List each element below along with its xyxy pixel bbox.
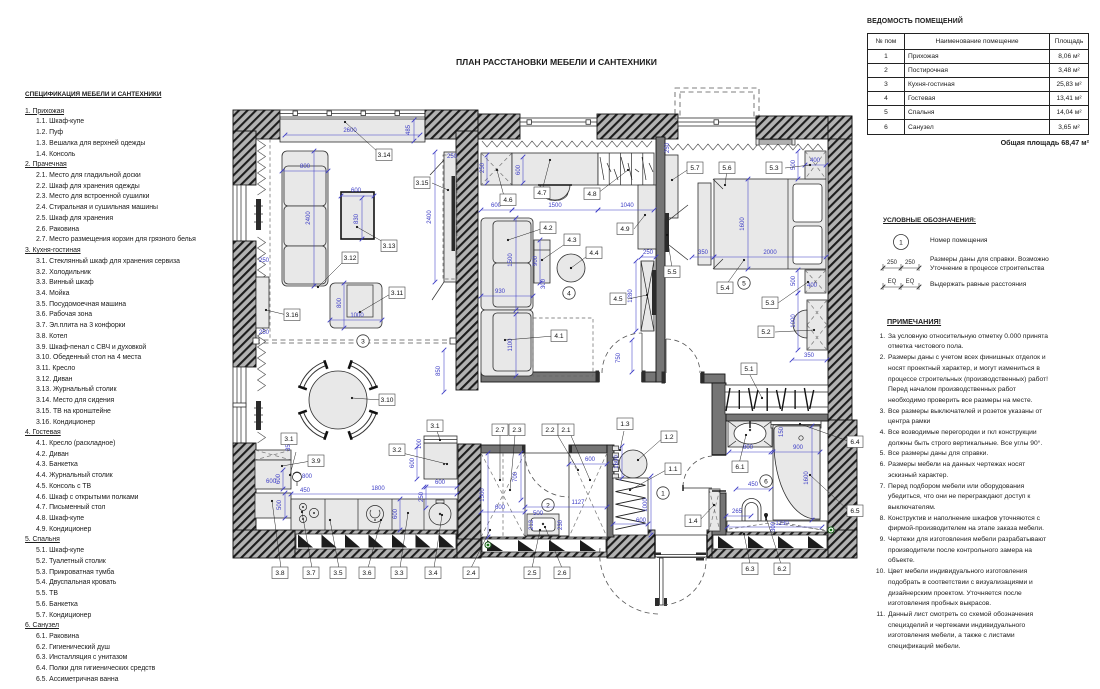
svg-text:1.1: 1.1 <box>668 466 677 473</box>
svg-text:2.2: 2.2 <box>545 427 554 434</box>
svg-text:3.14: 3.14 <box>378 152 391 159</box>
svg-text:600: 600 <box>495 505 506 511</box>
svg-text:5.7: 5.7 <box>690 165 699 172</box>
svg-text:3.8: 3.8 <box>275 570 284 577</box>
svg-text:2000: 2000 <box>763 250 777 256</box>
svg-text:300: 300 <box>541 278 547 289</box>
svg-text:600: 600 <box>276 473 282 484</box>
svg-text:3.11: 3.11 <box>391 290 404 297</box>
svg-text:6.5: 6.5 <box>850 508 859 515</box>
svg-text:4.1: 4.1 <box>554 333 563 340</box>
svg-text:6.1: 6.1 <box>735 464 744 471</box>
svg-text:2.1: 2.1 <box>561 427 570 434</box>
svg-text:1500: 1500 <box>480 488 486 502</box>
svg-text:800: 800 <box>743 445 754 451</box>
svg-text:1.3: 1.3 <box>620 421 629 428</box>
svg-text:4.7: 4.7 <box>537 190 546 197</box>
svg-text:1800: 1800 <box>371 486 385 492</box>
svg-text:4.9: 4.9 <box>620 226 629 233</box>
svg-text:600: 600 <box>410 457 416 468</box>
svg-text:485: 485 <box>406 124 412 135</box>
svg-text:EQ: EQ <box>888 279 897 285</box>
svg-text:930: 930 <box>495 289 506 295</box>
svg-text:3.4: 3.4 <box>428 570 437 577</box>
svg-text:1.2: 1.2 <box>664 434 673 441</box>
svg-text:6: 6 <box>764 479 768 486</box>
svg-text:800: 800 <box>300 164 311 170</box>
svg-text:5.2: 5.2 <box>761 329 770 336</box>
svg-text:3.15: 3.15 <box>416 180 429 187</box>
svg-text:4.6: 4.6 <box>503 197 512 204</box>
svg-text:4.2: 4.2 <box>543 225 552 232</box>
svg-text:800: 800 <box>302 474 313 480</box>
svg-text:1.4: 1.4 <box>688 518 697 525</box>
svg-text:830: 830 <box>354 213 360 224</box>
svg-text:600: 600 <box>393 508 399 519</box>
svg-text:4.8: 4.8 <box>587 191 596 198</box>
svg-text:3.1: 3.1 <box>430 423 439 430</box>
svg-text:1230: 1230 <box>775 521 789 527</box>
svg-text:3.9: 3.9 <box>311 458 320 465</box>
svg-text:900: 900 <box>533 255 539 266</box>
svg-text:250: 250 <box>447 154 458 160</box>
svg-text:1500: 1500 <box>508 253 514 267</box>
svg-text:400: 400 <box>807 283 818 289</box>
svg-text:500: 500 <box>277 499 283 510</box>
svg-text:250: 250 <box>887 260 898 266</box>
svg-text:4.4: 4.4 <box>589 250 598 257</box>
svg-text:6.3: 6.3 <box>745 566 754 573</box>
svg-text:100: 100 <box>417 438 423 449</box>
svg-text:EQ: EQ <box>906 279 915 285</box>
svg-text:3.7: 3.7 <box>306 570 315 577</box>
svg-text:4.5: 4.5 <box>613 296 622 303</box>
svg-text:1: 1 <box>661 491 665 498</box>
svg-text:500: 500 <box>533 511 544 517</box>
svg-text:750: 750 <box>616 352 622 363</box>
svg-text:1000: 1000 <box>791 314 797 328</box>
svg-text:2.7: 2.7 <box>495 427 504 434</box>
svg-text:3.10: 3.10 <box>381 397 394 404</box>
svg-text:700: 700 <box>513 471 519 482</box>
svg-text:3.6: 3.6 <box>362 570 371 577</box>
svg-text:265: 265 <box>732 509 743 515</box>
svg-text:250: 250 <box>643 250 654 256</box>
svg-text:1127: 1127 <box>572 500 586 506</box>
svg-text:213: 213 <box>529 519 535 530</box>
svg-text:1280: 1280 <box>628 289 634 303</box>
svg-text:250: 250 <box>665 142 671 153</box>
svg-text:300: 300 <box>771 521 777 532</box>
svg-text:1040: 1040 <box>620 203 634 209</box>
svg-text:600: 600 <box>585 457 596 463</box>
svg-text:5.3: 5.3 <box>769 165 778 172</box>
svg-text:600: 600 <box>516 164 522 175</box>
svg-text:250: 250 <box>259 330 270 336</box>
svg-text:5.3: 5.3 <box>765 300 774 307</box>
svg-text:250: 250 <box>259 258 270 264</box>
svg-text:600: 600 <box>636 518 647 524</box>
svg-text:500: 500 <box>791 159 797 170</box>
svg-text:2: 2 <box>546 503 550 510</box>
svg-text:400: 400 <box>810 158 821 164</box>
svg-text:4.3: 4.3 <box>567 237 576 244</box>
svg-text:350: 350 <box>804 353 815 359</box>
svg-text:350: 350 <box>698 250 709 256</box>
svg-text:3.5: 3.5 <box>333 570 342 577</box>
svg-text:250: 250 <box>905 260 916 266</box>
svg-text:1: 1 <box>899 240 903 247</box>
svg-text:3.13: 3.13 <box>383 243 396 250</box>
svg-text:1000: 1000 <box>643 498 649 512</box>
svg-text:250: 250 <box>480 162 486 173</box>
svg-text:5.5: 5.5 <box>667 269 676 276</box>
svg-text:1000: 1000 <box>350 313 364 319</box>
svg-text:5: 5 <box>742 281 746 288</box>
svg-text:230: 230 <box>558 519 564 530</box>
svg-text:5.4: 5.4 <box>720 285 729 292</box>
svg-text:850: 850 <box>436 365 442 376</box>
svg-text:3.2: 3.2 <box>392 447 401 454</box>
svg-text:3.3: 3.3 <box>394 570 403 577</box>
svg-text:3.12: 3.12 <box>344 255 357 262</box>
svg-text:2.6: 2.6 <box>557 570 566 577</box>
svg-text:900: 900 <box>793 445 804 451</box>
svg-text:1600: 1600 <box>614 455 620 469</box>
svg-text:6.2: 6.2 <box>777 566 786 573</box>
svg-text:1600: 1600 <box>804 471 810 485</box>
svg-text:5.6: 5.6 <box>722 165 731 172</box>
svg-text:2400: 2400 <box>306 211 312 225</box>
svg-text:250: 250 <box>419 491 425 502</box>
svg-text:500: 500 <box>791 275 797 286</box>
svg-text:4: 4 <box>567 291 571 298</box>
svg-text:800: 800 <box>337 297 343 308</box>
svg-text:3.1: 3.1 <box>284 436 293 443</box>
svg-text:1600: 1600 <box>740 217 746 231</box>
svg-text:1500: 1500 <box>548 203 562 209</box>
svg-text:2400: 2400 <box>427 210 433 224</box>
svg-text:450: 450 <box>300 488 311 494</box>
svg-text:3.16: 3.16 <box>286 312 299 319</box>
svg-text:600: 600 <box>435 480 446 486</box>
svg-text:6.4: 6.4 <box>850 439 859 446</box>
svg-text:5.1: 5.1 <box>744 366 753 373</box>
svg-text:2.5: 2.5 <box>527 570 536 577</box>
svg-text:3: 3 <box>361 339 365 346</box>
svg-text:150: 150 <box>779 426 785 437</box>
svg-text:450: 450 <box>748 482 759 488</box>
svg-text:2.4: 2.4 <box>466 570 475 577</box>
svg-text:2.3: 2.3 <box>512 427 521 434</box>
svg-text:600: 600 <box>351 188 362 194</box>
